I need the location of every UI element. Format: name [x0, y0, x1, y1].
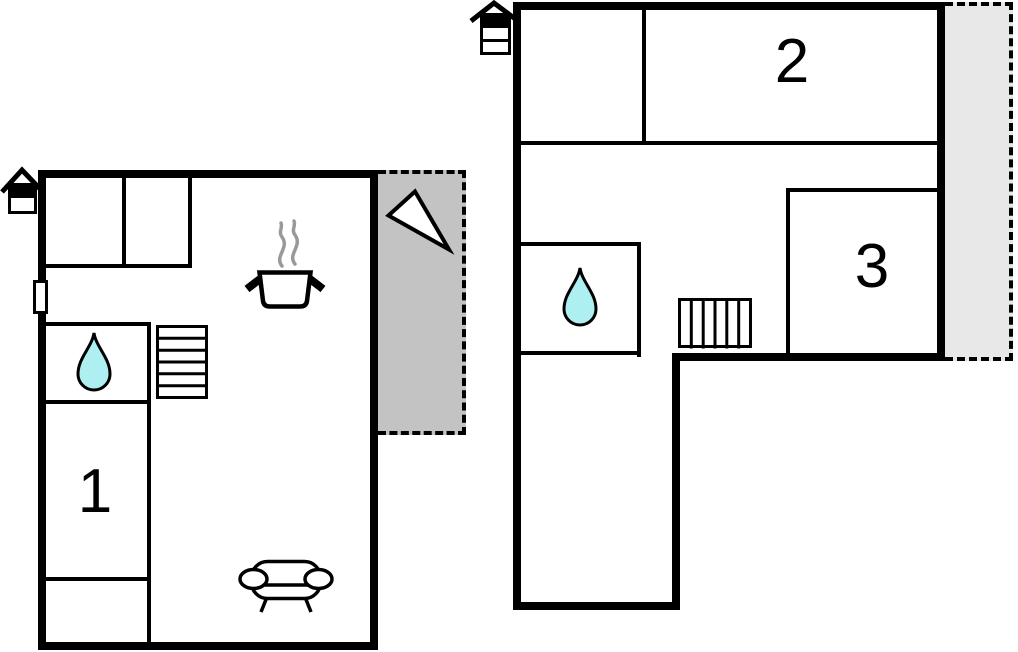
house-body [482, 15, 510, 54]
house-body-black-band [8, 183, 37, 198]
room-3-label: 3 [832, 232, 912, 302]
upper-bathroom-right-wall [637, 242, 641, 357]
upper-bathroom-top-wall [521, 242, 641, 246]
house-entrance-icon-ground [2, 170, 43, 213]
water-drop-icon-upper [564, 268, 596, 325]
room2-bottom-wall [521, 141, 937, 145]
upper-top-wall [513, 2, 945, 10]
bathroom-bottom-wall [46, 400, 151, 404]
house-roof [471, 3, 518, 21]
house-entrance-icon-upper [471, 3, 518, 54]
upper-left-wall [513, 2, 521, 610]
upper-bathroom-bottom-wall [521, 351, 641, 355]
upper-mid-horizontal-wall [672, 353, 945, 361]
floor-plan-canvas: 1 2 3 [0, 0, 1018, 652]
stairs-outline [680, 300, 751, 347]
room3-left-wall [786, 188, 790, 353]
house-roof [2, 170, 43, 192]
upper-l-vertical-wall [672, 353, 680, 610]
house-body-black-band [480, 13, 511, 28]
room-2-label: 2 [752, 27, 832, 97]
closet-divider-wall [122, 178, 126, 268]
room-1-label: 1 [55, 457, 135, 527]
room1-right-wall [147, 404, 151, 645]
upper-right-wall [937, 2, 945, 361]
bathroom-right-wall [147, 322, 151, 404]
room3-top-wall [786, 188, 937, 192]
terrace-right [945, 2, 1013, 361]
upper-closet-divider-wall [642, 10, 646, 141]
closet-right-wall [188, 178, 192, 268]
upper-bottom-wall [513, 602, 680, 610]
terrace-left [378, 170, 466, 435]
door-marker [33, 280, 48, 314]
bathroom-top-wall [46, 322, 151, 326]
stairs-icon-upper [680, 298, 751, 349]
closet-bottom-wall [46, 264, 192, 268]
house-body [10, 185, 36, 213]
room1-bottom-wall [46, 577, 147, 581]
